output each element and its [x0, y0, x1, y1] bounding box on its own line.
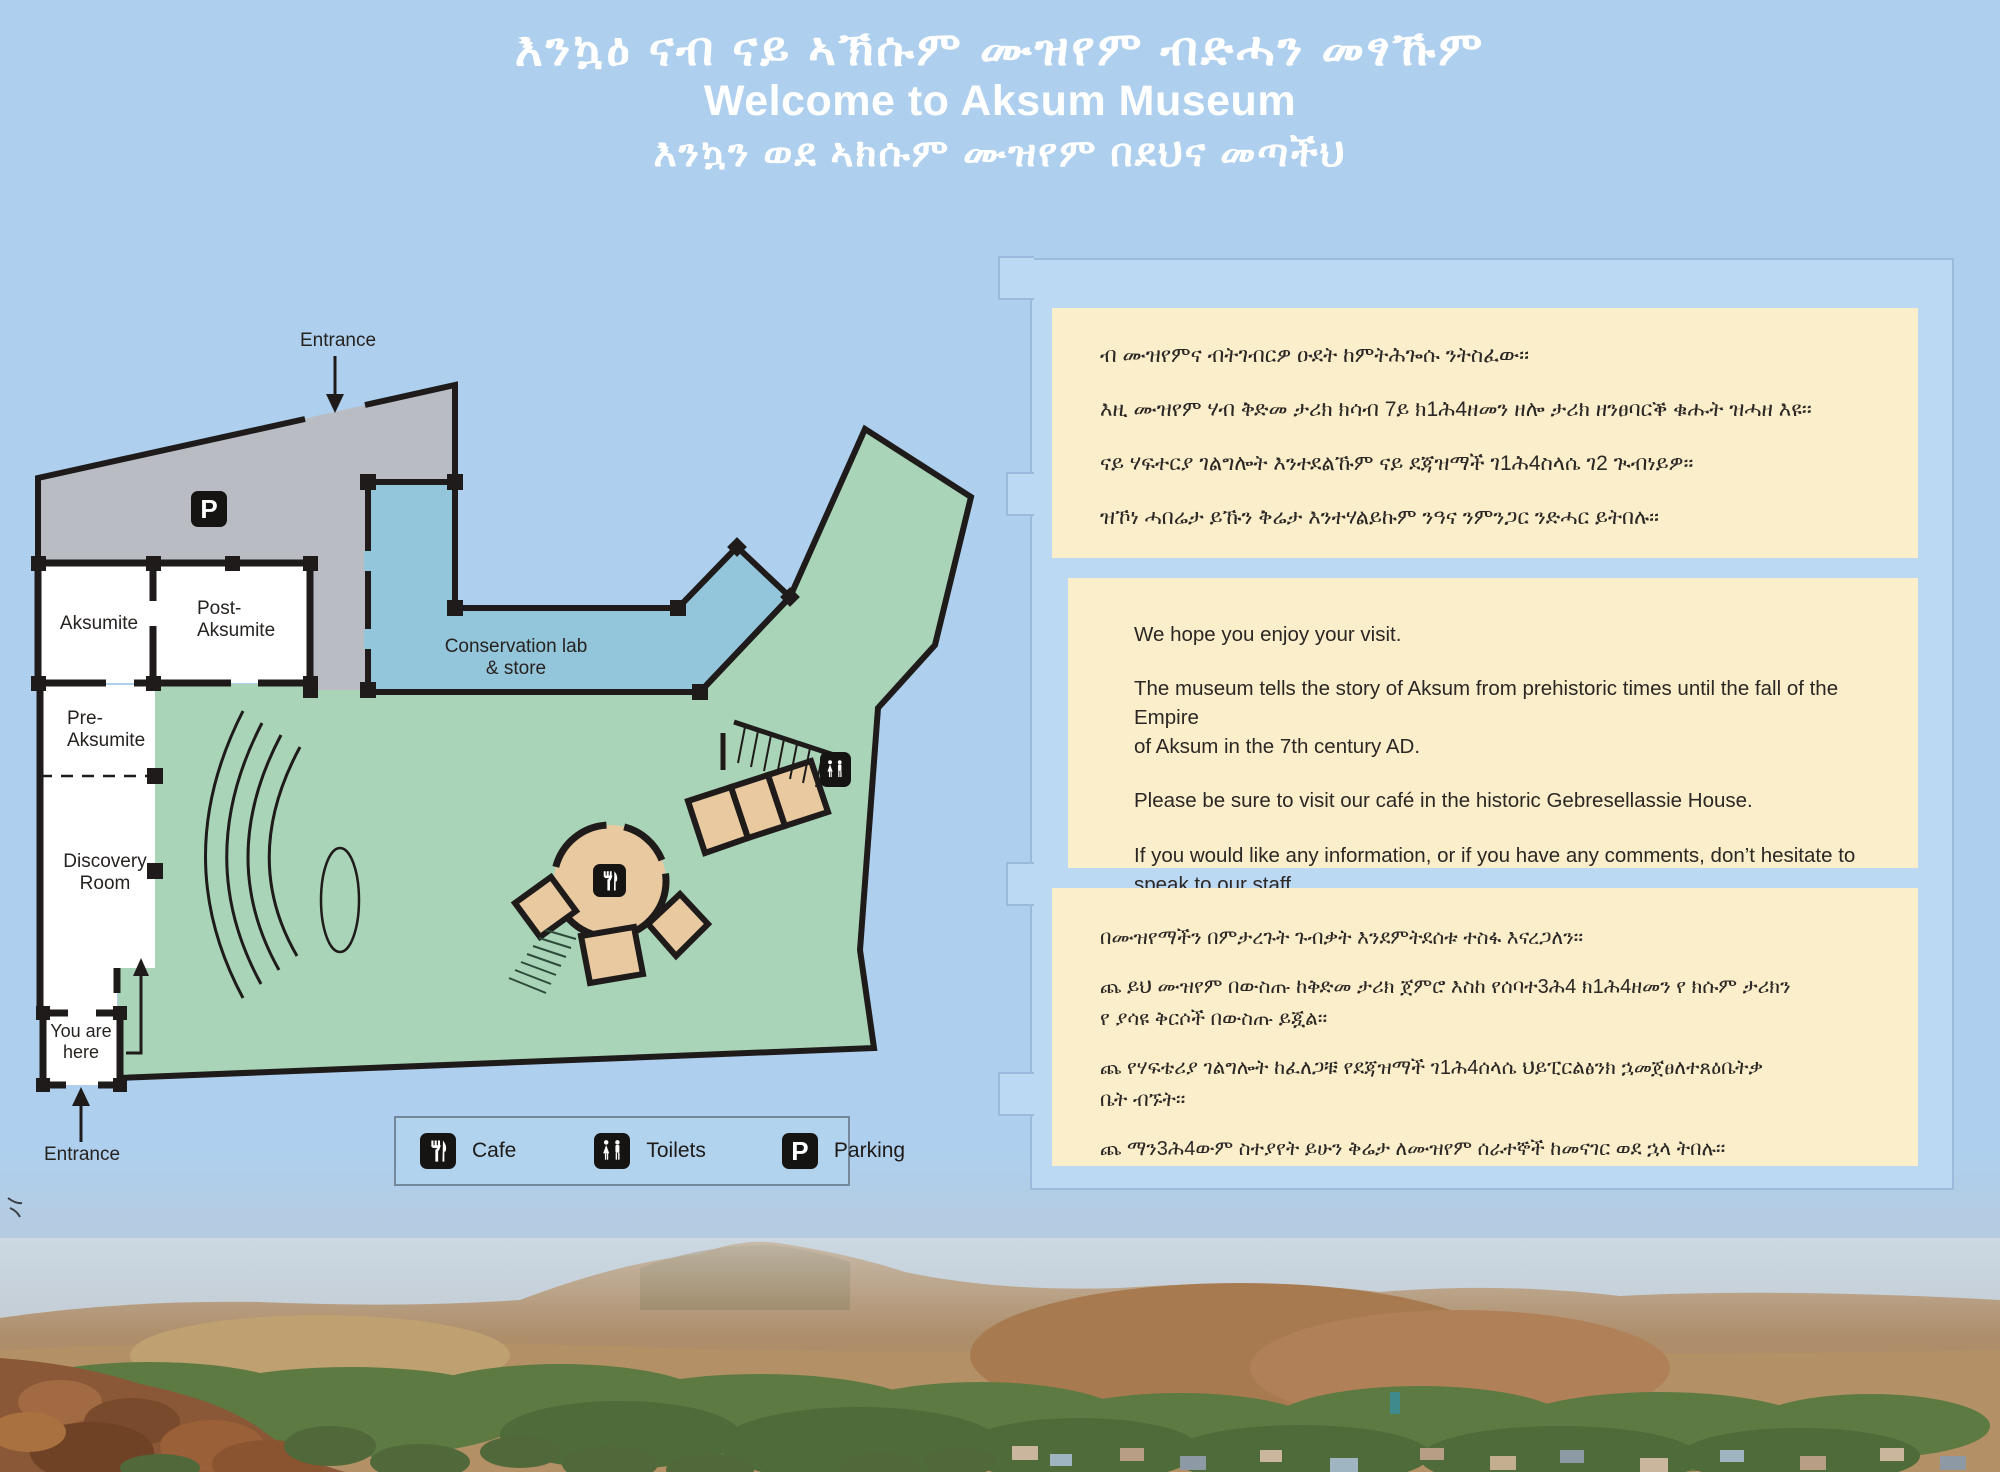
parking-area	[38, 385, 455, 690]
museum-welcome-sign: እንኳዕ ናብ ናይ ኣኽሱም ሙዝየም ብድሓን መፃኹም Welcome t…	[0, 0, 2000, 1472]
vestibule	[40, 968, 117, 1013]
entrance-arrow-bottom	[72, 1087, 90, 1142]
aksum-landscape-photo	[0, 1150, 2000, 1472]
board-tab	[1006, 472, 1034, 516]
tigrinya-line: ናይ ሃፍተርያ ገልግሎት እንተደልኹም ናይ ደጃዝማች ገ1ሕ4ስላሴ …	[1100, 452, 1878, 476]
toilets-icon	[820, 752, 851, 787]
board-tab	[1006, 862, 1034, 906]
legend-item-parking: P Parking	[782, 1133, 905, 1169]
legend-item-cafe: Cafe	[420, 1133, 516, 1169]
wall-corner-diamonds	[727, 537, 800, 607]
tigrinya-line: እዚ ሙዝየም ሃብ ቅድመ ታሪክ ክሳብ 7ይ ክ1ሕ4ዘመን ዘሎ ታሪክ…	[1100, 398, 1878, 422]
legend: Cafe Toilets P Parking	[394, 1116, 850, 1186]
parking-icon: P	[191, 491, 227, 527]
panel-tigrinya: ብ ሙዝየምና ብትገብርዎ ዑደት ከምትሕጐሱ ንትስፈው፡፡ እዚ ሙዝየ…	[1052, 308, 1918, 558]
amharic-line: ጨ የሃፍቴሪያ ገልግሎት ከፈለጋቹ የደጃዝማች ገ1ሕ4ሰላሴ ህይፒር…	[1100, 1052, 1878, 1116]
label-entrance-bottom: Entrance	[44, 1144, 120, 1166]
board-tab	[998, 1072, 1034, 1116]
tigrinya-line: ብ ሙዝየምና ብትገብርዎ ዑደት ከምትሕጐሱ ንትስፈው፡፡	[1100, 344, 1878, 368]
door-posts	[31, 474, 708, 1092]
panel-amharic: በሙዝየማችን በምታረጉት ጉብቃት እንደምትደሰቱ ተስፋ እናረጋለን፡…	[1052, 888, 1918, 1166]
route-arrow	[126, 958, 149, 1053]
legend-item-toilets: Toilets	[594, 1133, 706, 1169]
label-post-aksumite: Post- Aksumite	[197, 598, 275, 643]
seating-arcs	[206, 711, 301, 998]
title-tigrinya: እንኳዕ ናብ ናይ ኣኽሱም ሙዝየም ብድሓን መፃኹም	[0, 24, 2000, 73]
landscape-graphic	[0, 1150, 2000, 1472]
toilets-icon	[594, 1133, 630, 1169]
cafe-icon	[420, 1133, 456, 1169]
amharic-line: ጨ ማን3ሕ4ውም ስተያየት ይሁን ቅሬታ ለሙዝየም ሰራተኞች ከመናገ…	[1100, 1133, 1878, 1165]
legend-label-parking: Parking	[834, 1139, 905, 1163]
board-tab	[998, 256, 1034, 300]
cafe-building	[509, 825, 708, 993]
entrance-arrow-top	[326, 356, 344, 413]
label-aksumite: Aksumite	[60, 613, 138, 635]
oval-feature	[321, 848, 359, 952]
label-you-are-here: You are here	[50, 1021, 111, 1063]
tigrinya-line: ዝኾነ ሓበሬታ ይኹን ቅሬታ እንተሃልይኩም ንዓና ንምንጋር ንድሓር…	[1100, 506, 1878, 530]
label-discovery-room: Discovery Room	[63, 851, 146, 896]
english-paragraph: The museum tells the story of Aksum from…	[1134, 674, 1878, 761]
label-entrance-top: Entrance	[300, 330, 376, 352]
amharic-line: ጨ ይህ ሙዝየም በውስጡ ከቅድመ ታሪክ ጀምሮ እስከ የሰባተ3ሕ4 …	[1100, 971, 1878, 1035]
label-pre-aksumite: Pre- Aksumite	[67, 708, 145, 753]
bird-mark	[4, 1194, 28, 1220]
toilets-building	[688, 722, 840, 853]
legend-label-toilets: Toilets	[646, 1139, 706, 1163]
english-paragraph: Please be sure to visit our café in the …	[1134, 786, 1878, 815]
toilets-stairs	[738, 727, 823, 787]
amharic-line: በሙዝየማችን በምታረጉት ጉብቃት እንደምትደሰቱ ተስፋ እናረጋለን፡…	[1100, 922, 1878, 954]
cafe-icon	[593, 864, 626, 897]
english-paragraph: We hope you enjoy your visit.	[1134, 620, 1878, 649]
parking-icon: P	[782, 1133, 818, 1169]
title-block: እንኳዕ ናብ ናይ ኣኽሱም ሙዝየም ብድሓን መፃኹም Welcome t…	[0, 24, 2000, 176]
title-amharic: እንኳን ወደ ኣክሱም ሙዝየም በደህና መጣችህ	[0, 132, 2000, 176]
title-english: Welcome to Aksum Museum	[0, 77, 2000, 126]
panel-english: We hope you enjoy your visit. The museum…	[1068, 578, 1918, 868]
cafe-stairs	[509, 930, 576, 993]
label-conservation-lab: Conservation lab & store	[445, 636, 588, 681]
legend-label-cafe: Cafe	[472, 1139, 516, 1163]
